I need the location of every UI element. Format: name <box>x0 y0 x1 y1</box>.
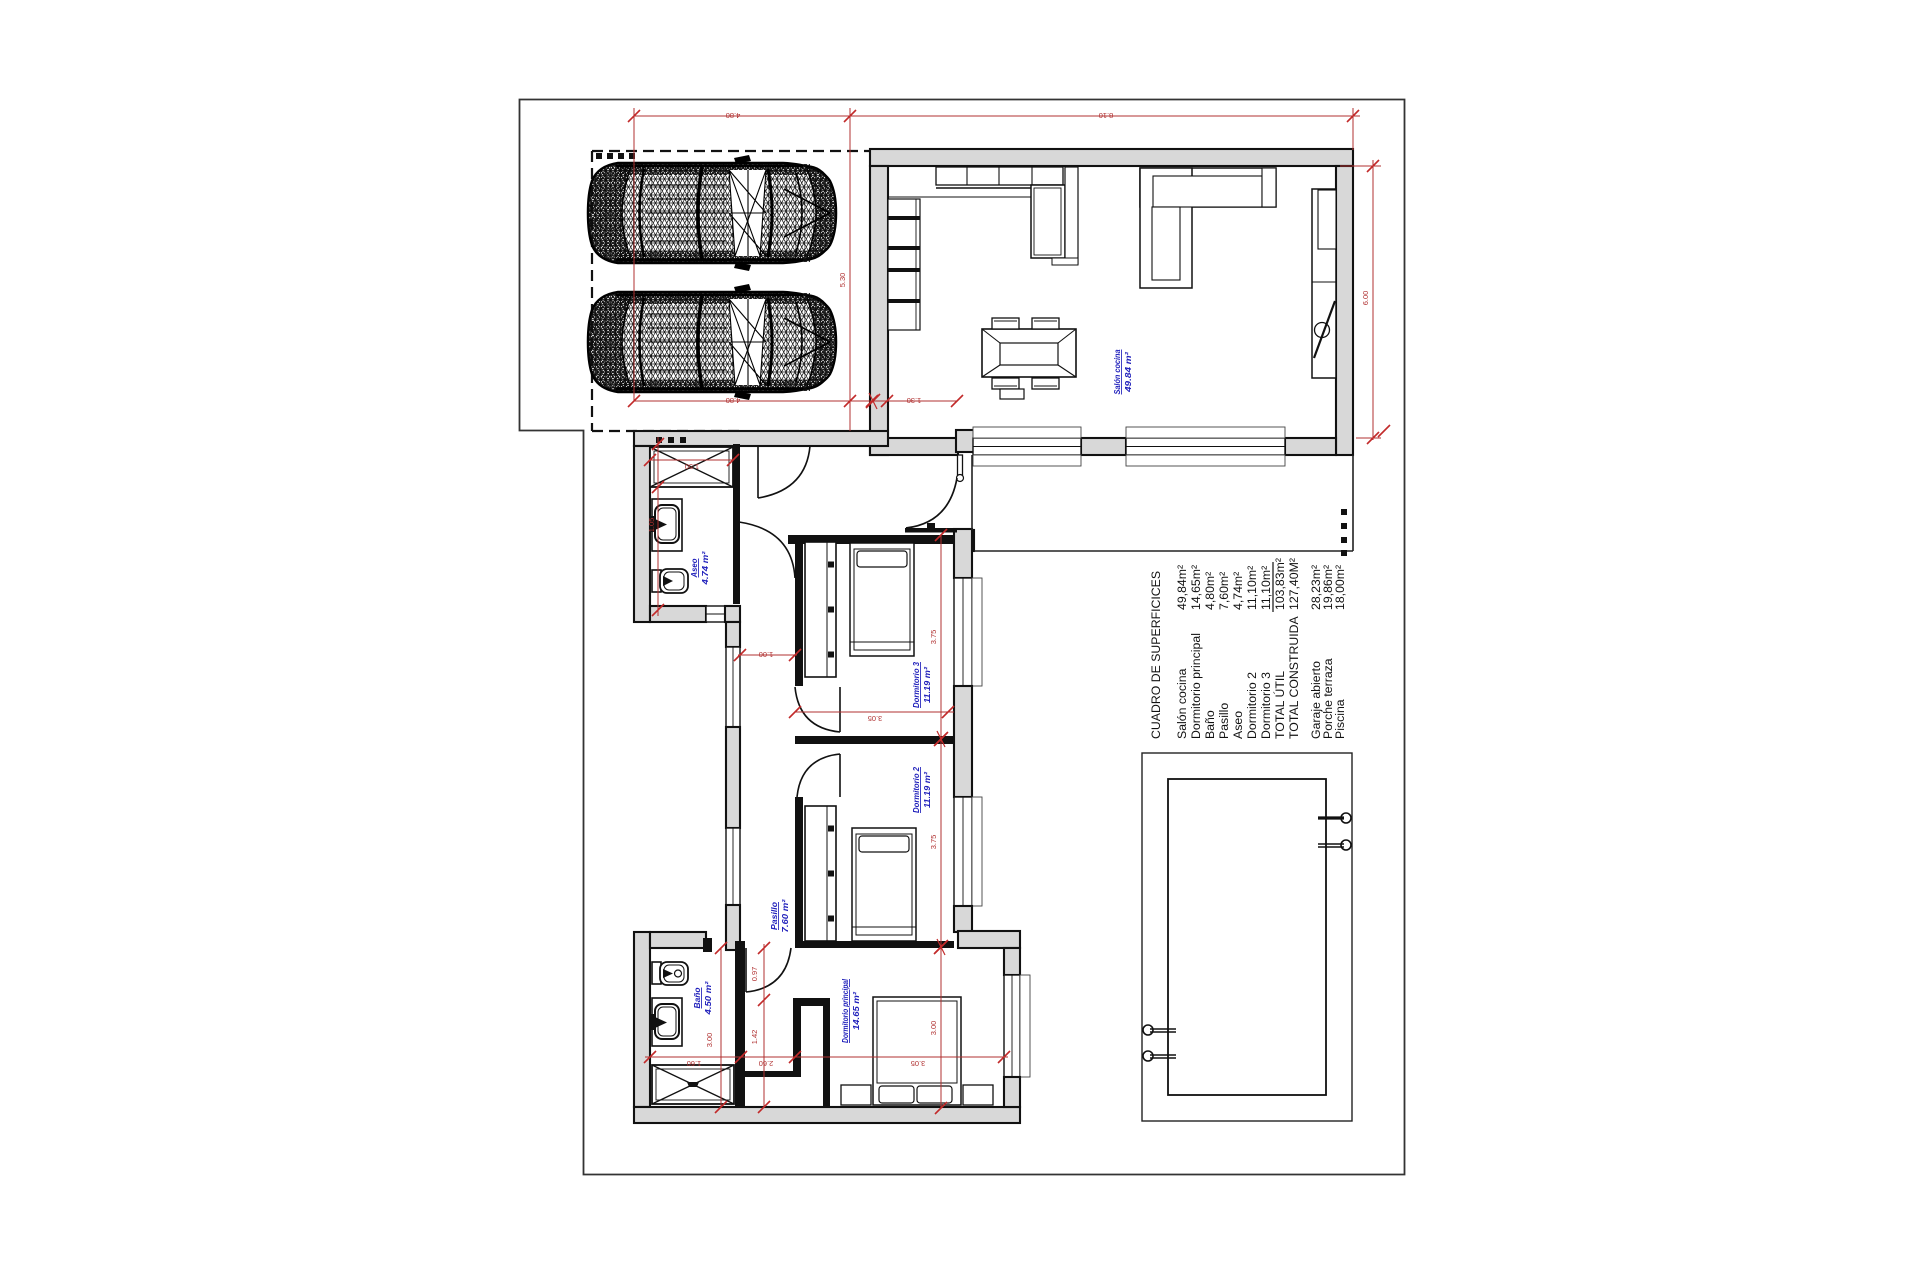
svg-text:1.50: 1.50 <box>685 462 700 471</box>
svg-text:1.05: 1.05 <box>647 518 656 533</box>
svg-text:Dormitorio 2: Dormitorio 2 <box>911 767 921 813</box>
svg-text:Aseo: Aseo <box>689 559 699 579</box>
svg-text:2.60: 2.60 <box>759 1059 774 1068</box>
svg-text:TOTAL CONSTRUIDA: TOTAL CONSTRUIDA <box>1287 615 1301 739</box>
svg-text:11.19 m²: 11.19 m² <box>922 771 932 808</box>
svg-text:18,00m²: 18,00m² <box>1333 565 1347 610</box>
svg-text:3.00: 3.00 <box>705 1033 714 1048</box>
svg-text:11.19 m²: 11.19 m² <box>922 666 932 703</box>
svg-text:8.10: 8.10 <box>1099 111 1114 120</box>
svg-text:3.75: 3.75 <box>929 835 938 850</box>
svg-text:1.60: 1.60 <box>687 1059 702 1068</box>
svg-text:Salón cocina: Salón cocina <box>1175 668 1189 739</box>
svg-text:Baño: Baño <box>1203 710 1217 739</box>
svg-text:103,83m²: 103,83m² <box>1273 558 1287 610</box>
svg-text:0.97: 0.97 <box>750 967 759 982</box>
svg-text:4.74 m²: 4.74 m² <box>700 550 710 585</box>
svg-text:14.65 m²: 14.65 m² <box>851 991 861 1030</box>
svg-text:Dormitorio 3: Dormitorio 3 <box>911 662 921 708</box>
svg-text:49.84 m²: 49.84 m² <box>1123 351 1133 394</box>
svg-text:14,65m²: 14,65m² <box>1189 565 1203 610</box>
svg-text:Pasillo: Pasillo <box>769 902 779 930</box>
svg-text:Baño: Baño <box>692 988 702 1009</box>
svg-text:Dormitorio 3: Dormitorio 3 <box>1259 672 1273 739</box>
svg-text:Aseo: Aseo <box>1231 711 1245 739</box>
svg-text:4.80: 4.80 <box>726 111 741 120</box>
svg-text:Dormitorio principal: Dormitorio principal <box>1189 633 1203 739</box>
svg-text:11,10m²: 11,10m² <box>1245 566 1259 610</box>
svg-text:4,80m²: 4,80m² <box>1203 572 1217 610</box>
svg-text:7,60m²: 7,60m² <box>1217 572 1231 610</box>
svg-text:4.80: 4.80 <box>726 396 741 405</box>
svg-text:TOTAL ÚTIL: TOTAL ÚTIL <box>1272 671 1287 739</box>
svg-text:3.05: 3.05 <box>911 1059 926 1068</box>
svg-text:1.42: 1.42 <box>750 1030 759 1045</box>
svg-text:3.05: 3.05 <box>868 714 883 723</box>
svg-text:Salón cocina: Salón cocina <box>1112 349 1122 394</box>
svg-text:127,40M²: 127,40M² <box>1287 558 1301 610</box>
svg-text:11,10m²: 11,10m² <box>1259 566 1273 610</box>
svg-text:5.30: 5.30 <box>838 273 847 288</box>
svg-text:3.75: 3.75 <box>929 630 938 645</box>
svg-text:1.00: 1.00 <box>759 650 774 659</box>
svg-text:7.60 m²: 7.60 m² <box>780 898 790 932</box>
svg-text:Pasillo: Pasillo <box>1217 703 1231 739</box>
svg-text:Dormitorio principal: Dormitorio principal <box>840 979 850 1043</box>
svg-text:49,84m²: 49,84m² <box>1175 565 1189 610</box>
svg-text:CUADRO DE SUPERFICICES: CUADRO DE SUPERFICICES <box>1149 571 1163 739</box>
svg-text:6.00: 6.00 <box>1361 291 1370 306</box>
svg-text:Piscina: Piscina <box>1333 699 1347 739</box>
svg-text:1.30: 1.30 <box>907 396 922 405</box>
svg-text:Dormitorio 2: Dormitorio 2 <box>1245 672 1259 739</box>
svg-text:4.50 m²: 4.50 m² <box>703 980 713 1015</box>
svg-text:4,74m²: 4,74m² <box>1231 572 1245 610</box>
svg-text:3.00: 3.00 <box>929 1021 938 1036</box>
